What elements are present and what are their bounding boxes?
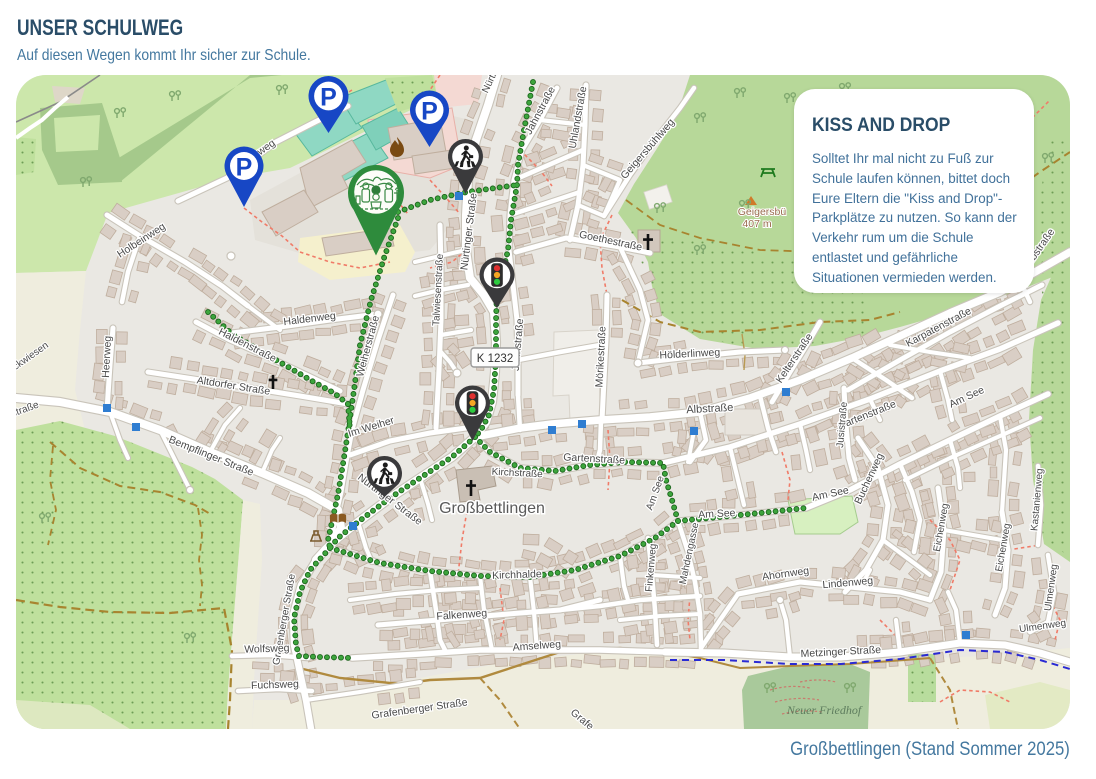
- svg-text:Neuer Friedhof: Neuer Friedhof: [786, 703, 863, 717]
- svg-text:P: P: [421, 97, 438, 125]
- svg-text:Geigersbü: Geigersbü: [738, 206, 787, 218]
- svg-text:Am See: Am See: [698, 507, 736, 521]
- svg-text:Albstraße: Albstraße: [686, 402, 734, 416]
- svg-text:Kirchhalde: Kirchhalde: [492, 568, 542, 582]
- svg-text:Heerweg: Heerweg: [100, 335, 114, 378]
- svg-text:407 m: 407 m: [742, 218, 771, 230]
- svg-text:Fuchsweg: Fuchsweg: [251, 678, 299, 692]
- svg-text:P: P: [320, 84, 337, 112]
- svg-text:Großbettlingen: Großbettlingen: [439, 500, 545, 517]
- svg-text:P: P: [236, 153, 253, 181]
- svg-text:Wolfsweg: Wolfsweg: [244, 642, 290, 656]
- svg-text:K 1232: K 1232: [477, 353, 513, 365]
